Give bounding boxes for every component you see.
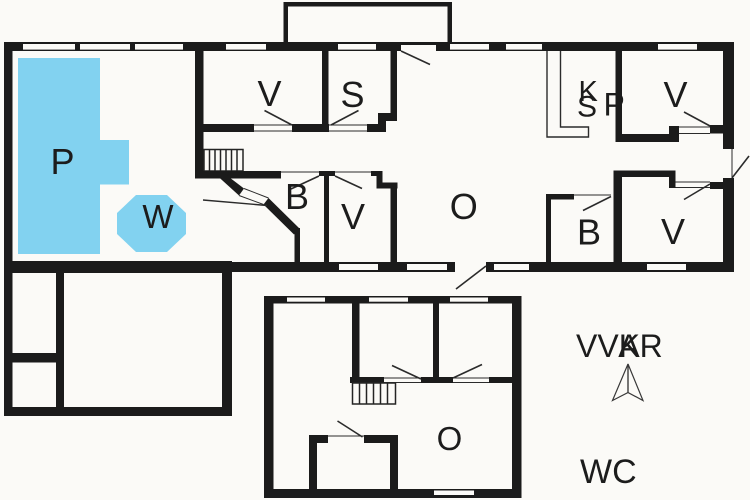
- svg-text:W: W: [142, 198, 174, 235]
- svg-text:V: V: [661, 211, 685, 252]
- svg-text:O: O: [437, 420, 463, 457]
- svg-text:O: O: [450, 186, 478, 227]
- svg-text:V: V: [663, 74, 687, 115]
- svg-text:WC: WC: [580, 453, 637, 491]
- svg-text:V: V: [341, 196, 365, 237]
- svg-text:AR: AR: [618, 328, 662, 364]
- svg-text:S: S: [577, 91, 597, 124]
- svg-text:B: B: [285, 176, 309, 217]
- svg-text:V: V: [257, 73, 281, 114]
- svg-text:B: B: [577, 212, 601, 253]
- svg-text:S: S: [340, 74, 364, 115]
- svg-text:P: P: [50, 141, 74, 182]
